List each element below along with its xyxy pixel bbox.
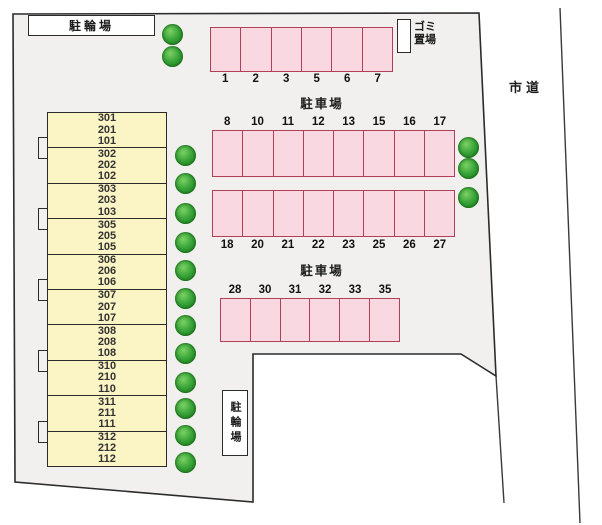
unit-number: 111 <box>98 419 115 430</box>
tree-icon <box>175 315 196 336</box>
parking-space-number: 33 <box>340 284 370 297</box>
parking-space-number: 1 <box>210 73 241 86</box>
bicycle-parking-text: 駐輪場 <box>69 17 114 34</box>
parking-lot-label-upper: 駐車場 <box>277 93 367 112</box>
parking-space-number: 7 <box>363 73 394 86</box>
building-unit: 302202102 <box>48 148 166 183</box>
tree-icon <box>175 452 196 473</box>
building-unit: 303203103 <box>48 184 166 219</box>
unit-number: 307 <box>98 290 116 301</box>
parking-space <box>339 299 369 341</box>
tree-icon <box>175 398 196 419</box>
tree-icon <box>175 203 196 224</box>
parking-space <box>240 28 270 71</box>
tree-icon <box>175 343 196 364</box>
unit-number: 301 <box>98 113 116 124</box>
unit-number: 110 <box>98 384 116 395</box>
property-boundary-line <box>496 376 504 503</box>
building-unit: 307207107 <box>48 290 166 325</box>
parking-space <box>303 131 333 176</box>
garbage-line1: ゴミ <box>414 21 436 33</box>
parking-spaces-strip <box>210 27 393 72</box>
parking-space <box>211 28 240 71</box>
building-unit: 310210110 <box>48 361 166 396</box>
tree-icon <box>175 372 196 393</box>
parking-space <box>221 299 250 341</box>
unit-number: 108 <box>98 348 116 359</box>
parking-space <box>303 191 333 236</box>
site-plan: 駐輪場 ゴミ置場 駐車場 駐車場 市道 駐輪場 3012011013022021… <box>0 0 602 525</box>
parking-space-number: 25 <box>364 239 394 252</box>
tree-icon <box>458 158 479 179</box>
tree-icon <box>175 288 196 309</box>
parking-space-number: 20 <box>242 239 272 252</box>
unit-number: 107 <box>98 313 116 324</box>
parking-spaces-strip <box>220 298 400 342</box>
tree-icon <box>162 46 183 67</box>
parking-space-number: 5 <box>302 73 333 86</box>
parking-space-number: 23 <box>334 239 364 252</box>
tree-icon <box>175 260 196 281</box>
parking-space-number: 28 <box>220 284 250 297</box>
parking-space <box>309 299 339 341</box>
parking-space-number: 15 <box>364 116 394 129</box>
parking-space <box>424 131 454 176</box>
tree-icon <box>458 187 479 208</box>
parking-space <box>213 131 242 176</box>
unit-number: 203 <box>98 195 116 206</box>
parking-space-number: 18 <box>212 239 242 252</box>
garbage-line2: 置場 <box>414 34 436 46</box>
unit-number: 210 <box>98 372 116 383</box>
parking-numbers: 283031323335 <box>220 284 400 297</box>
parking-space <box>333 131 363 176</box>
garbage-area-box <box>397 19 411 53</box>
parking-numbers: 1820212223252627 <box>212 239 455 252</box>
city-road-label: 市道 <box>509 77 543 96</box>
parking-space-number: 26 <box>394 239 424 252</box>
unit-number: 101 <box>98 136 116 147</box>
parking-space <box>242 191 272 236</box>
parking-space <box>273 131 303 176</box>
parking-space-number: 2 <box>241 73 272 86</box>
parking-space-number: 11 <box>273 116 303 129</box>
parking-space <box>333 191 363 236</box>
parking-space <box>363 131 393 176</box>
parking-space-number: 16 <box>394 116 424 129</box>
parking-space-number: 12 <box>303 116 333 129</box>
parking-space <box>363 191 393 236</box>
road-edge-line <box>560 8 580 523</box>
parking-numbers: 123567 <box>210 73 393 86</box>
parking-space <box>271 28 301 71</box>
unit-number: 106 <box>98 277 116 288</box>
parking-space-number: 10 <box>242 116 272 129</box>
parking-space-number: 17 <box>425 116 455 129</box>
parking-space <box>362 28 392 71</box>
parking-space-number: 6 <box>332 73 363 86</box>
parking-space <box>242 131 272 176</box>
parking-lot-label-lower: 駐車場 <box>277 260 367 279</box>
parking-space-number: 8 <box>212 116 242 129</box>
parking-space-number: 22 <box>303 239 333 252</box>
parking-space-number: 32 <box>310 284 340 297</box>
parking-space <box>250 299 280 341</box>
tree-icon <box>175 232 196 253</box>
parking-space <box>280 299 310 341</box>
parking-space <box>394 191 424 236</box>
building-unit: 306206106 <box>48 255 166 290</box>
garbage-area-label: ゴミ置場 <box>414 21 436 47</box>
parking-space <box>273 191 303 236</box>
parking-space <box>301 28 331 71</box>
tree-icon <box>162 24 183 45</box>
parking-spaces-strip <box>212 190 455 237</box>
tree-icon <box>458 137 479 158</box>
apartment-building: 3012011013022021023032031033052051053062… <box>47 112 167 467</box>
unit-number: 103 <box>98 207 116 218</box>
building-unit: 308208108 <box>48 325 166 360</box>
bicycle-parking-text-vertical: 駐輪場 <box>227 401 243 446</box>
parking-space-number: 13 <box>334 116 364 129</box>
parking-space-number: 31 <box>280 284 310 297</box>
tree-icon <box>175 425 196 446</box>
unit-number: 105 <box>98 242 116 253</box>
parking-space-number: 27 <box>425 239 455 252</box>
building-unit: 301201101 <box>48 113 166 148</box>
unit-number: 102 <box>98 171 116 182</box>
bicycle-parking-label-bottom: 駐輪場 <box>222 390 248 456</box>
bicycle-parking-label-top: 駐輪場 <box>28 15 155 36</box>
parking-space <box>331 28 361 71</box>
parking-numbers: 810111213151617 <box>212 116 455 129</box>
parking-space-number: 30 <box>250 284 280 297</box>
parking-spaces-strip <box>212 130 455 177</box>
parking-space-number: 3 <box>271 73 302 86</box>
parking-space-number: 35 <box>370 284 400 297</box>
parking-space <box>394 131 424 176</box>
parking-space <box>369 299 399 341</box>
tree-icon <box>175 173 196 194</box>
parking-space-number: 21 <box>273 239 303 252</box>
building-unit: 305205105 <box>48 219 166 254</box>
unit-number: 112 <box>98 454 116 465</box>
building-unit: 311211111 <box>48 396 166 431</box>
parking-space <box>424 191 454 236</box>
building-unit: 312212112 <box>48 432 166 466</box>
parking-space <box>213 191 242 236</box>
tree-icon <box>175 145 196 166</box>
